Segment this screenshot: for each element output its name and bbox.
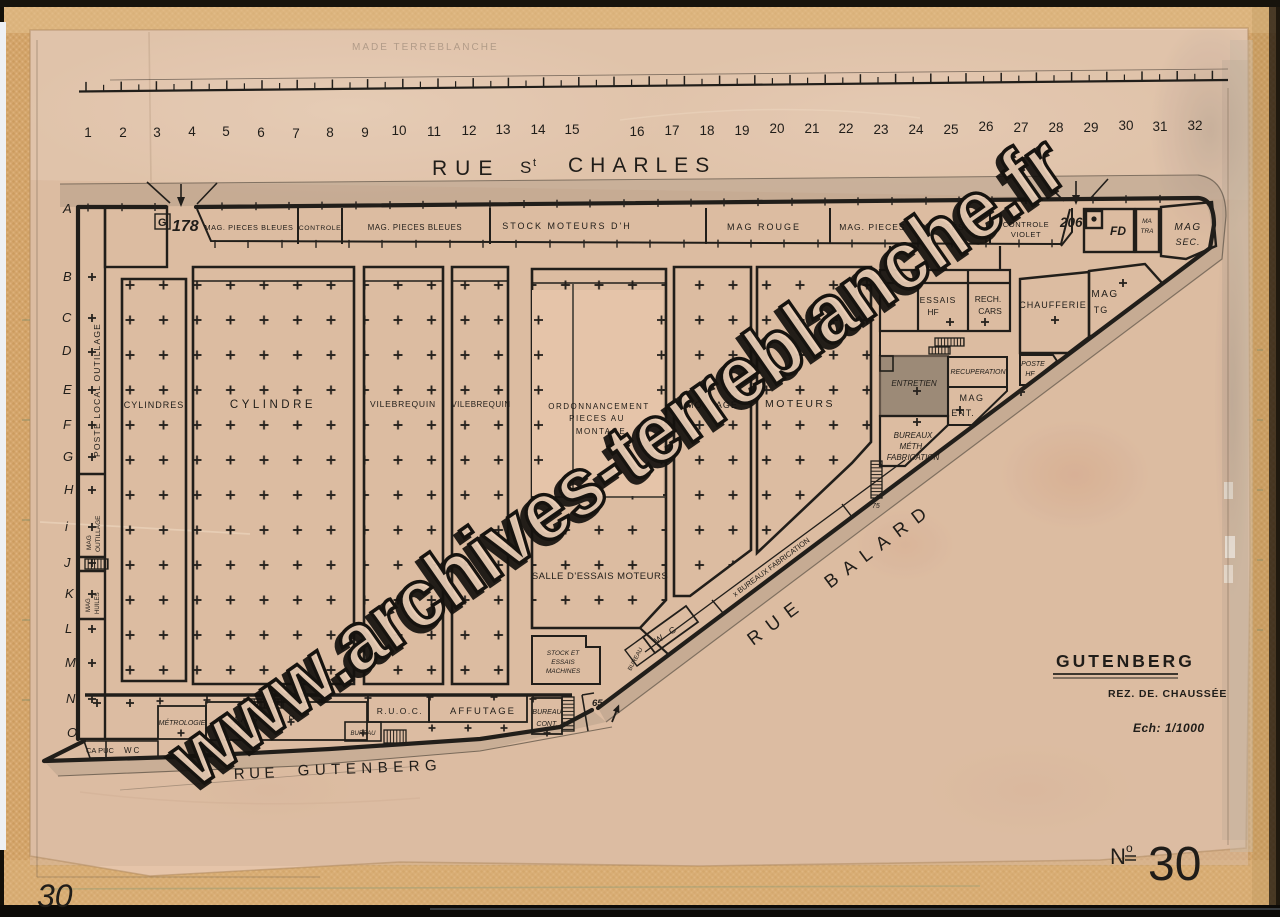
svg-text:CHAUFFERIE: CHAUFFERIE xyxy=(1019,300,1087,310)
svg-text:3: 3 xyxy=(153,125,161,140)
svg-text:MA: MA xyxy=(1142,218,1152,225)
svg-text:Ech: 1/1000: Ech: 1/1000 xyxy=(1133,721,1205,735)
svg-text:CONT.: CONT. xyxy=(536,721,557,728)
svg-text:N: N xyxy=(66,691,76,706)
svg-text:14: 14 xyxy=(530,122,546,137)
svg-text:ESSAIS: ESSAIS xyxy=(551,659,575,666)
svg-text:RUE: RUE xyxy=(432,157,500,180)
svg-text:HF: HF xyxy=(927,307,938,317)
svg-text:32: 32 xyxy=(1187,118,1202,133)
svg-text:CARS: CARS xyxy=(978,306,1002,316)
svg-text:26: 26 xyxy=(978,119,993,134)
svg-text:HUILES: HUILES xyxy=(95,592,101,614)
svg-text:MAG: MAG xyxy=(86,535,93,550)
svg-text:5: 5 xyxy=(222,124,230,139)
svg-text:MAG ROUGE: MAG ROUGE xyxy=(727,222,801,232)
svg-text:F: F xyxy=(63,417,72,432)
svg-text:AFFUTAGE: AFFUTAGE xyxy=(450,706,516,717)
svg-text:CHARLES: CHARLES xyxy=(568,154,716,177)
svg-text:CYLINDRE: CYLINDRE xyxy=(230,399,316,411)
svg-text:OUTILLAGE: OUTILLAGE xyxy=(95,515,102,552)
svg-text:O: O xyxy=(67,725,77,740)
svg-text:G: G xyxy=(158,217,167,229)
svg-text:J: J xyxy=(63,555,71,570)
svg-text:TRA: TRA xyxy=(1141,228,1154,235)
svg-text:K: K xyxy=(65,586,75,601)
svg-text:N: N xyxy=(1110,844,1126,869)
svg-text:30: 30 xyxy=(1148,838,1201,891)
svg-text:CYLINDRES: CYLINDRES xyxy=(124,400,185,410)
svg-text:A: A xyxy=(62,201,72,216)
svg-text:178: 178 xyxy=(172,218,199,235)
svg-text:E: E xyxy=(63,382,72,397)
svg-text:11: 11 xyxy=(427,124,441,139)
svg-text:SEC.: SEC. xyxy=(1175,237,1200,247)
svg-text:MÉTH.: MÉTH. xyxy=(900,442,925,451)
svg-text:30: 30 xyxy=(1118,118,1133,133)
svg-text:8: 8 xyxy=(326,125,334,140)
svg-text:29: 29 xyxy=(1083,120,1098,135)
svg-text:28: 28 xyxy=(1048,120,1063,135)
svg-text:D: D xyxy=(62,343,71,358)
svg-text:1: 1 xyxy=(84,125,92,140)
svg-text:12: 12 xyxy=(461,123,476,138)
svg-text:16: 16 xyxy=(629,124,644,139)
svg-text:4: 4 xyxy=(188,124,196,139)
svg-text:FABRICATION: FABRICATION xyxy=(887,453,940,462)
svg-text:BUREAUX: BUREAUX xyxy=(894,431,933,440)
svg-text:BUREAU: BUREAU xyxy=(532,709,562,716)
svg-text:M: M xyxy=(65,655,76,670)
svg-text:65: 65 xyxy=(592,698,603,709)
svg-text:9: 9 xyxy=(361,125,369,140)
svg-text:CONTROLE: CONTROLE xyxy=(299,225,342,232)
svg-text:MAG: MAG xyxy=(959,393,984,403)
svg-text:RECH.: RECH. xyxy=(975,294,1001,304)
svg-text:MAG. PIECES BLEUES: MAG. PIECES BLEUES xyxy=(368,223,462,232)
svg-text:MADE TERREBLANCHE: MADE TERREBLANCHE xyxy=(352,42,499,53)
svg-text:6: 6 xyxy=(257,125,265,140)
svg-text:L: L xyxy=(65,621,72,636)
svg-text:C: C xyxy=(62,310,72,325)
svg-text:25: 25 xyxy=(943,122,958,137)
svg-text:o: o xyxy=(1126,841,1133,855)
svg-text:REZ. DE. CHAUSSÉE: REZ. DE. CHAUSSÉE xyxy=(1108,687,1227,700)
svg-text:31: 31 xyxy=(1152,119,1167,134)
svg-text:22: 22 xyxy=(838,121,853,136)
svg-text:STOCK MOTEURS D'H: STOCK MOTEURS D'H xyxy=(502,221,632,231)
svg-text:19: 19 xyxy=(734,123,749,138)
svg-text:GUTENBERG: GUTENBERG xyxy=(1056,651,1195,671)
svg-text:23: 23 xyxy=(873,122,888,137)
svg-text:H: H xyxy=(64,482,74,497)
svg-text:MAG. PIECES BLEUES: MAG. PIECES BLEUES xyxy=(204,223,293,232)
svg-text:MAG: MAG xyxy=(1091,289,1118,300)
svg-text:MAG: MAG xyxy=(1174,222,1201,233)
svg-text:FD: FD xyxy=(1110,224,1126,238)
svg-text:RECUPERATION: RECUPERATION xyxy=(950,369,1006,376)
svg-text:2: 2 xyxy=(119,125,127,140)
svg-text:10: 10 xyxy=(391,123,406,138)
svg-text:VILEBREQUIN: VILEBREQUIN xyxy=(451,400,510,409)
svg-text:30: 30 xyxy=(37,878,73,914)
svg-text:WC: WC xyxy=(124,746,141,755)
svg-text:15: 15 xyxy=(564,122,579,137)
svg-text:75: 75 xyxy=(872,503,880,510)
svg-text:POSTE: POSTE xyxy=(1021,361,1045,368)
svg-text:HF: HF xyxy=(1025,371,1035,378)
svg-text:21: 21 xyxy=(804,121,819,136)
svg-text:206: 206 xyxy=(1059,215,1083,230)
svg-text:18: 18 xyxy=(699,123,714,138)
svg-text:17: 17 xyxy=(664,123,679,138)
svg-text:ENTRETIEN: ENTRETIEN xyxy=(891,379,937,388)
svg-text:TG: TG xyxy=(1094,305,1109,315)
svg-text:24: 24 xyxy=(908,122,924,137)
svg-text:MAG: MAG xyxy=(86,598,92,612)
svg-text:20: 20 xyxy=(769,121,784,136)
svg-text:G: G xyxy=(63,449,73,464)
svg-text:13: 13 xyxy=(495,122,510,137)
svg-text:7: 7 xyxy=(292,126,300,141)
svg-text:STOCK ET: STOCK ET xyxy=(547,650,580,657)
svg-text:R.U.O.C.: R.U.O.C. xyxy=(377,706,423,716)
svg-text:CA PUC: CA PUC xyxy=(86,746,115,755)
svg-text:t: t xyxy=(533,157,536,169)
svg-text:SALLE D'ESSAIS MOTEURS: SALLE D'ESSAIS MOTEURS xyxy=(532,571,668,582)
svg-text:S: S xyxy=(520,158,531,177)
svg-text:VILEBREQUIN: VILEBREQUIN xyxy=(370,399,436,409)
svg-text:B: B xyxy=(63,269,72,284)
svg-text:MACHINES: MACHINES xyxy=(546,668,581,675)
